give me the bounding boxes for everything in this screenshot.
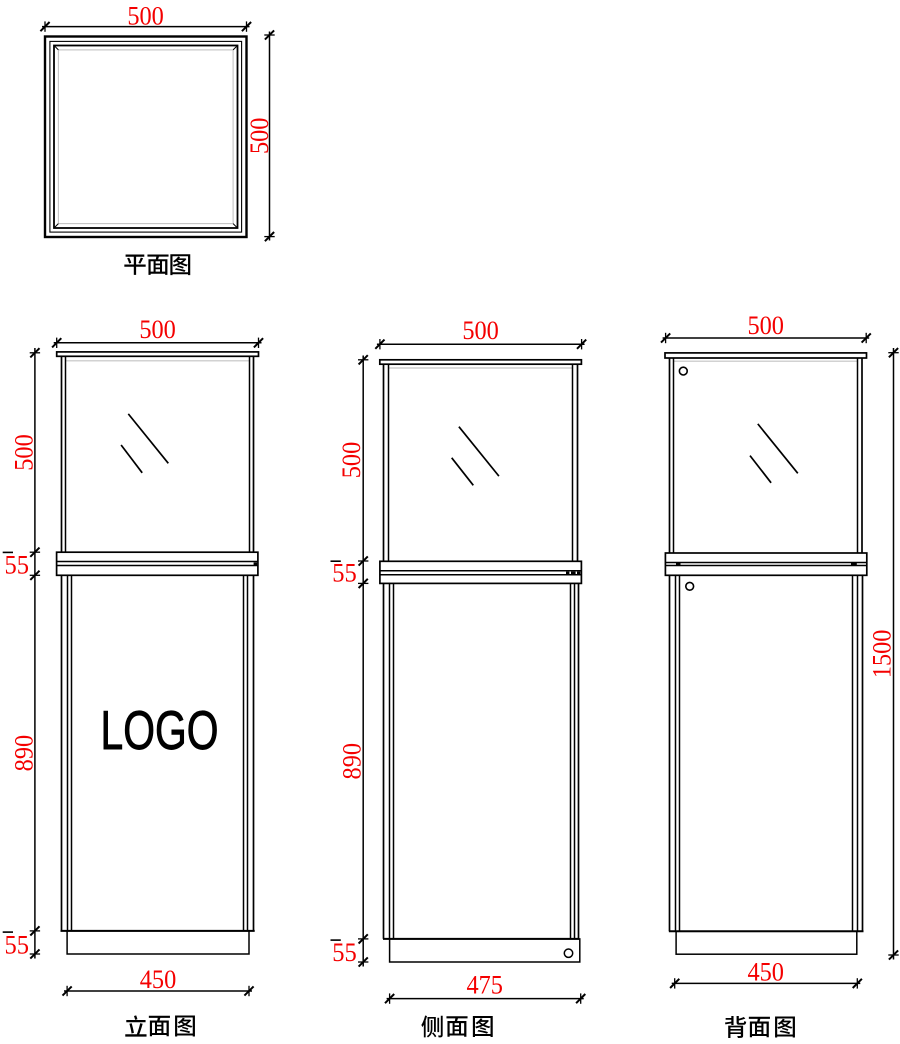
svg-text:500: 500	[747, 311, 784, 340]
svg-text:475: 475	[466, 971, 503, 1000]
svg-text:500: 500	[9, 434, 38, 471]
svg-text:LOGO: LOGO	[101, 699, 219, 761]
svg-text:450: 450	[140, 965, 177, 994]
svg-text:500: 500	[245, 118, 274, 155]
svg-text:450: 450	[747, 958, 784, 987]
svg-text:500: 500	[139, 315, 176, 344]
svg-text:890: 890	[338, 743, 367, 780]
svg-text:55: 55	[4, 931, 29, 960]
svg-text:55: 55	[332, 938, 357, 967]
svg-text:1500: 1500	[867, 630, 896, 679]
svg-text:500: 500	[462, 316, 499, 345]
svg-text:890: 890	[10, 735, 39, 772]
svg-text:55: 55	[4, 551, 29, 580]
svg-text:55: 55	[332, 559, 357, 588]
svg-text:500: 500	[337, 442, 366, 479]
